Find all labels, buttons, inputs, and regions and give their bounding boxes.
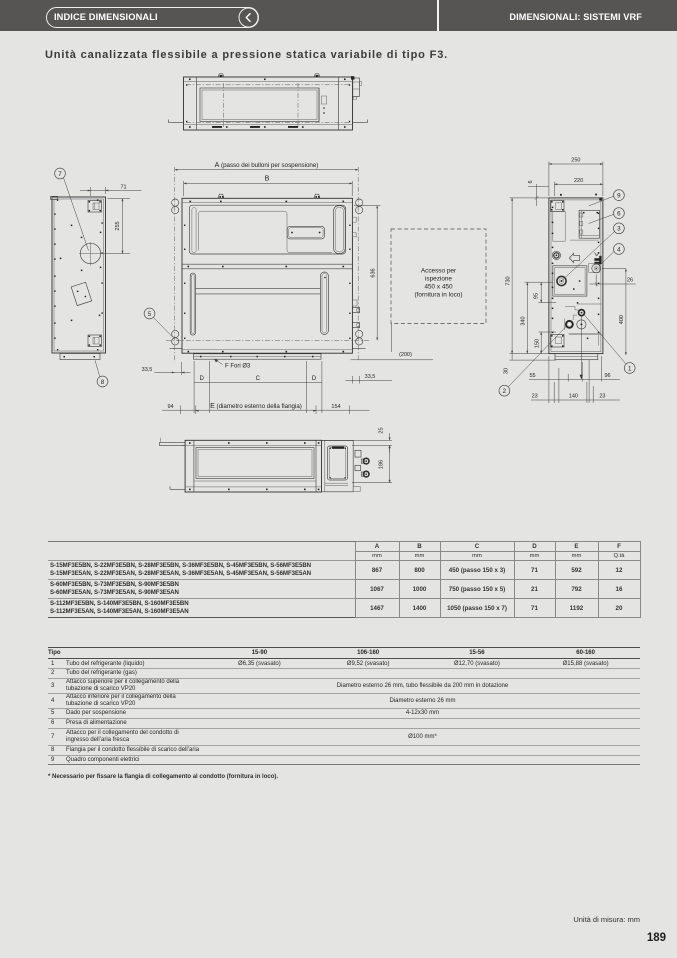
svg-text:220: 220 [574,178,583,184]
svg-text:400: 400 [619,315,625,324]
svg-text:9: 9 [617,192,621,199]
svg-text:23: 23 [599,394,605,400]
svg-text:33,5: 33,5 [142,367,153,373]
svg-text:95: 95 [534,293,540,299]
svg-text:23: 23 [532,394,538,400]
svg-text:340: 340 [521,316,527,325]
svg-text:140: 140 [569,394,578,400]
svg-text:4: 4 [617,246,621,253]
svg-text:A (passo dei bulloni per sospe: A (passo dei bulloni per sospensione) [215,162,319,169]
svg-text:6: 6 [617,210,621,217]
svg-text:E (diametro esterno della flan: E (diametro esterno della flangia) [210,403,302,410]
svg-text:55: 55 [529,373,535,379]
svg-text:71: 71 [120,185,126,191]
svg-text:6: 6 [528,180,534,183]
svg-text:2: 2 [503,388,507,395]
svg-text:Accesso per: Accesso per [421,268,457,275]
svg-text:F Fori Ø3: F Fori Ø3 [225,364,251,370]
svg-text:30: 30 [504,368,510,374]
svg-text:5: 5 [148,311,152,318]
svg-text:26: 26 [627,278,633,284]
svg-text:94: 94 [167,404,173,410]
svg-text:186: 186 [379,460,385,469]
svg-text:8: 8 [101,379,105,386]
svg-text:96: 96 [604,373,610,379]
svg-text:B: B [265,176,270,183]
svg-text:7: 7 [58,171,62,178]
svg-text:150: 150 [534,339,540,348]
svg-text:730: 730 [505,276,511,285]
svg-text:25: 25 [379,427,385,433]
svg-text:154: 154 [331,404,340,410]
svg-text:450 x 450: 450 x 450 [424,284,453,291]
svg-text:636: 636 [371,268,377,277]
svg-text:ispezione: ispezione [425,276,452,283]
svg-text:D: D [312,376,317,382]
svg-text:255: 255 [115,221,121,230]
svg-text:(200): (200) [399,352,412,358]
svg-text:1: 1 [628,365,632,372]
svg-text:D: D [200,376,205,382]
svg-text:3: 3 [617,226,621,233]
svg-text:(fornitura in loco): (fornitura in loco) [415,292,463,299]
svg-text:250: 250 [571,158,580,164]
svg-text:C: C [256,376,261,382]
svg-text:33,5: 33,5 [365,374,376,380]
